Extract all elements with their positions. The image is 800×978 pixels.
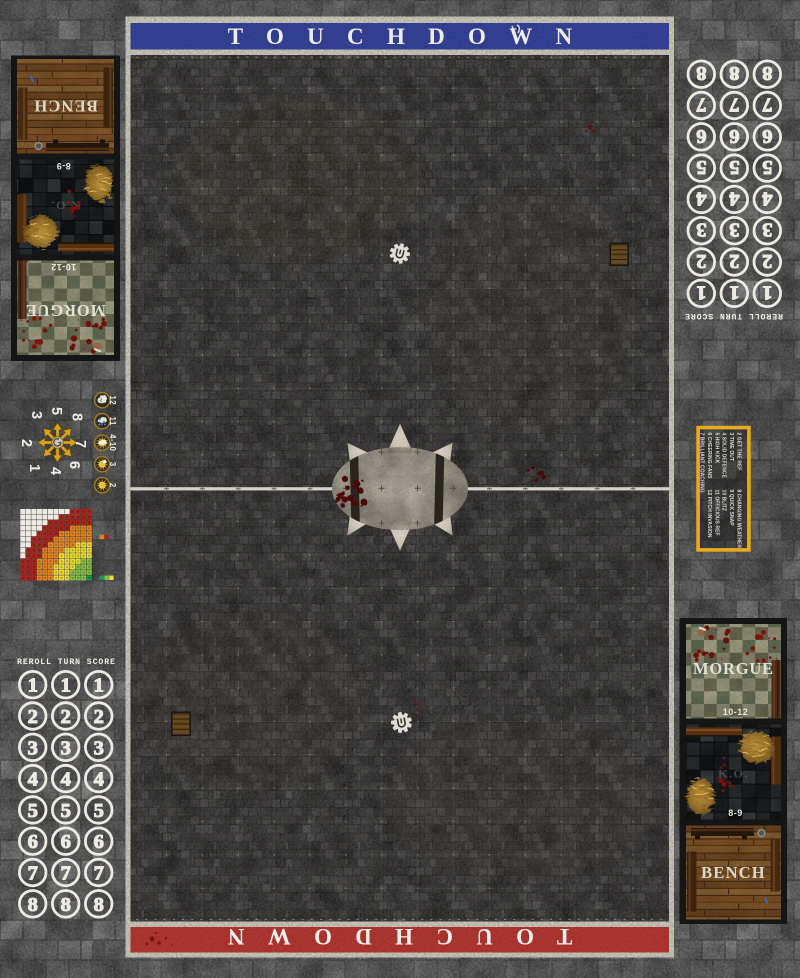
- svg-text:MORGUE: MORGUE: [693, 659, 774, 678]
- svg-text:REROLL TURN SCORE: REROLL TURN SCORE: [17, 658, 116, 667]
- svg-text:12 PITCH INVASION: 12 PITCH INVASION: [706, 490, 712, 538]
- svg-text:6: 6: [61, 831, 71, 853]
- svg-text:3: 3: [28, 737, 38, 759]
- svg-text:K.O.: K.O.: [718, 767, 749, 781]
- svg-text:8: 8: [729, 62, 739, 84]
- svg-text:MORGUE: MORGUE: [25, 301, 106, 320]
- svg-text:8-9: 8-9: [728, 808, 743, 818]
- svg-text:4-10: 4-10: [108, 434, 117, 451]
- svg-text:7: 7: [762, 94, 772, 116]
- svg-text:11: 11: [108, 417, 117, 426]
- svg-text:6: 6: [94, 831, 104, 853]
- svg-text:1: 1: [94, 675, 104, 697]
- svg-text:11 OFFICIOUS REF: 11 OFFICIOUS REF: [713, 490, 719, 536]
- svg-text:2: 2: [94, 706, 104, 728]
- svg-text:1: 1: [696, 281, 706, 303]
- svg-text:6: 6: [28, 831, 38, 853]
- svg-text:5: 5: [48, 407, 64, 415]
- svg-text:4: 4: [28, 769, 38, 791]
- svg-text:8: 8: [69, 413, 85, 421]
- svg-text:2: 2: [18, 439, 34, 447]
- svg-text:1: 1: [61, 675, 71, 697]
- svg-text:4 SOLID DEFENCE: 4 SOLID DEFENCE: [721, 433, 727, 479]
- svg-text:12: 12: [108, 395, 117, 405]
- svg-text:TOUCHDOWN: TOUCHDOWN: [205, 924, 573, 949]
- svg-text:1: 1: [729, 281, 739, 303]
- svg-text:3: 3: [61, 737, 71, 759]
- svg-text:BENCH: BENCH: [33, 97, 98, 116]
- svg-text:3: 3: [729, 219, 739, 241]
- svg-text:2 GET THE REF: 2 GET THE REF: [736, 433, 742, 471]
- svg-text:7: 7: [72, 440, 88, 448]
- svg-text:8 CHANGING WEATHER: 8 CHANGING WEATHER: [736, 490, 742, 549]
- svg-text:5: 5: [696, 156, 706, 178]
- svg-text:10 BLITZ: 10 BLITZ: [721, 490, 727, 512]
- svg-text:4: 4: [696, 187, 706, 209]
- svg-text:3 TIME OUT: 3 TIME OUT: [728, 433, 734, 462]
- svg-text:5: 5: [28, 800, 38, 822]
- svg-text:8: 8: [61, 894, 71, 916]
- svg-text:7 BRILLIANT COACHING: 7 BRILLIANT COACHING: [699, 433, 705, 493]
- svg-text:6: 6: [696, 125, 706, 147]
- svg-text:BENCH: BENCH: [701, 863, 766, 882]
- svg-text:9 QUICK SNAP: 9 QUICK SNAP: [728, 490, 734, 527]
- svg-text:6 CHEERING FANS: 6 CHEERING FANS: [706, 433, 712, 480]
- svg-text:4: 4: [762, 187, 772, 209]
- svg-text:8: 8: [94, 894, 104, 916]
- svg-text:4: 4: [94, 769, 104, 791]
- svg-text:8-9: 8-9: [56, 161, 71, 171]
- svg-text:7: 7: [61, 863, 71, 885]
- svg-text:8: 8: [696, 62, 706, 84]
- svg-text:3: 3: [94, 737, 104, 759]
- svg-text:5 HIGH KICK: 5 HIGH KICK: [713, 433, 719, 464]
- svg-text:2: 2: [762, 250, 772, 272]
- svg-text:4: 4: [729, 187, 739, 209]
- svg-text:3: 3: [762, 219, 772, 241]
- svg-text:3: 3: [108, 462, 117, 467]
- svg-text:2: 2: [696, 250, 706, 272]
- svg-text:5: 5: [762, 156, 772, 178]
- svg-text:5: 5: [729, 156, 739, 178]
- svg-text:TOUCHDOWN: TOUCHDOWN: [228, 24, 596, 49]
- svg-text:10-12: 10-12: [723, 707, 749, 717]
- svg-text:7: 7: [729, 94, 739, 116]
- svg-text:3: 3: [696, 219, 706, 241]
- svg-text:2: 2: [108, 483, 117, 488]
- svg-text:8: 8: [762, 62, 772, 84]
- svg-text:1: 1: [28, 675, 38, 697]
- svg-text:5: 5: [61, 800, 71, 822]
- svg-text:K.O.: K.O.: [50, 198, 81, 212]
- svg-text:8: 8: [28, 894, 38, 916]
- svg-text:1: 1: [762, 281, 772, 303]
- svg-text:6: 6: [66, 461, 82, 469]
- svg-text:6: 6: [729, 125, 739, 147]
- svg-text:7: 7: [28, 863, 38, 885]
- svg-text:2: 2: [729, 250, 739, 272]
- svg-text:6: 6: [762, 125, 772, 147]
- svg-text:4: 4: [47, 467, 63, 475]
- svg-text:10-12: 10-12: [51, 262, 77, 272]
- svg-text:7: 7: [94, 863, 104, 885]
- svg-text:3: 3: [28, 411, 44, 419]
- svg-text:2: 2: [28, 706, 38, 728]
- svg-text:4: 4: [61, 769, 71, 791]
- svg-text:2: 2: [61, 706, 71, 728]
- svg-text:REROLL TURN SCORE: REROLL TURN SCORE: [684, 311, 783, 320]
- svg-text:1: 1: [26, 464, 42, 472]
- svg-text:7: 7: [696, 94, 706, 116]
- svg-text:5: 5: [94, 800, 104, 822]
